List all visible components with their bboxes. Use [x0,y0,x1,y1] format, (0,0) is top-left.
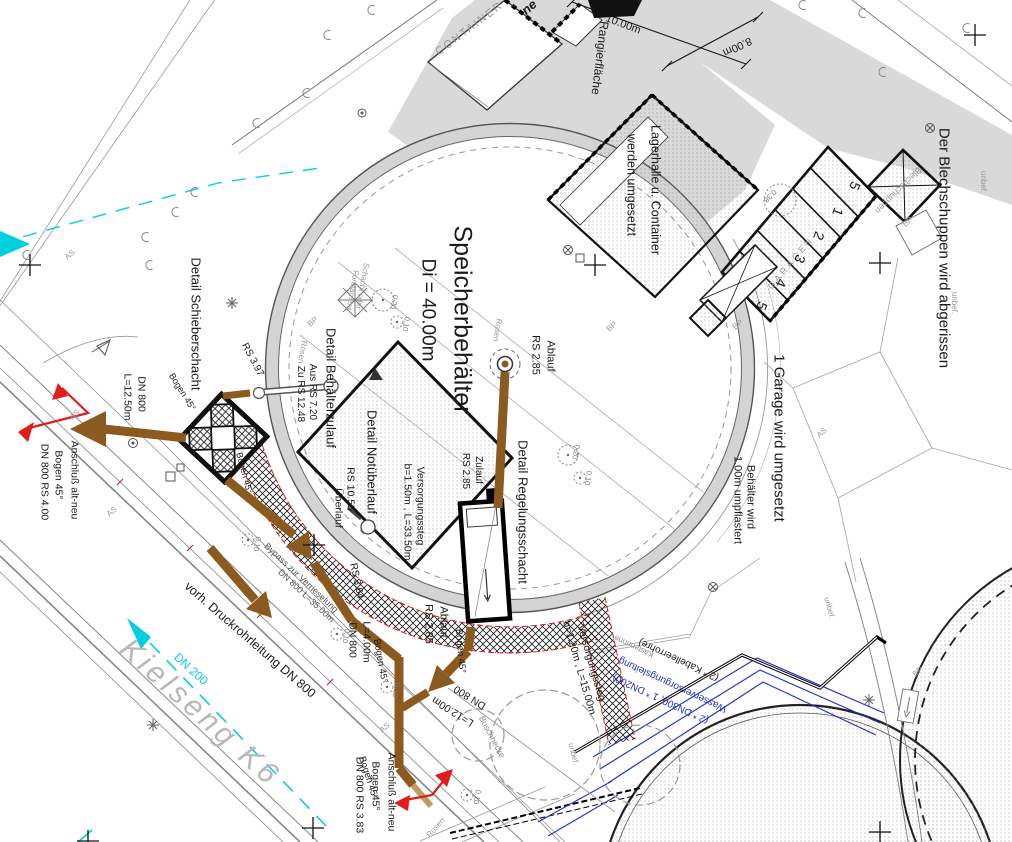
black-bar [588,0,642,18]
site-plan-screenshot: SpeicherbehälterDi = 40.00mAblaufRS 2.85… [0,0,1012,842]
site-plan-drawing [0,0,1012,842]
regelungsschacht [459,488,511,622]
